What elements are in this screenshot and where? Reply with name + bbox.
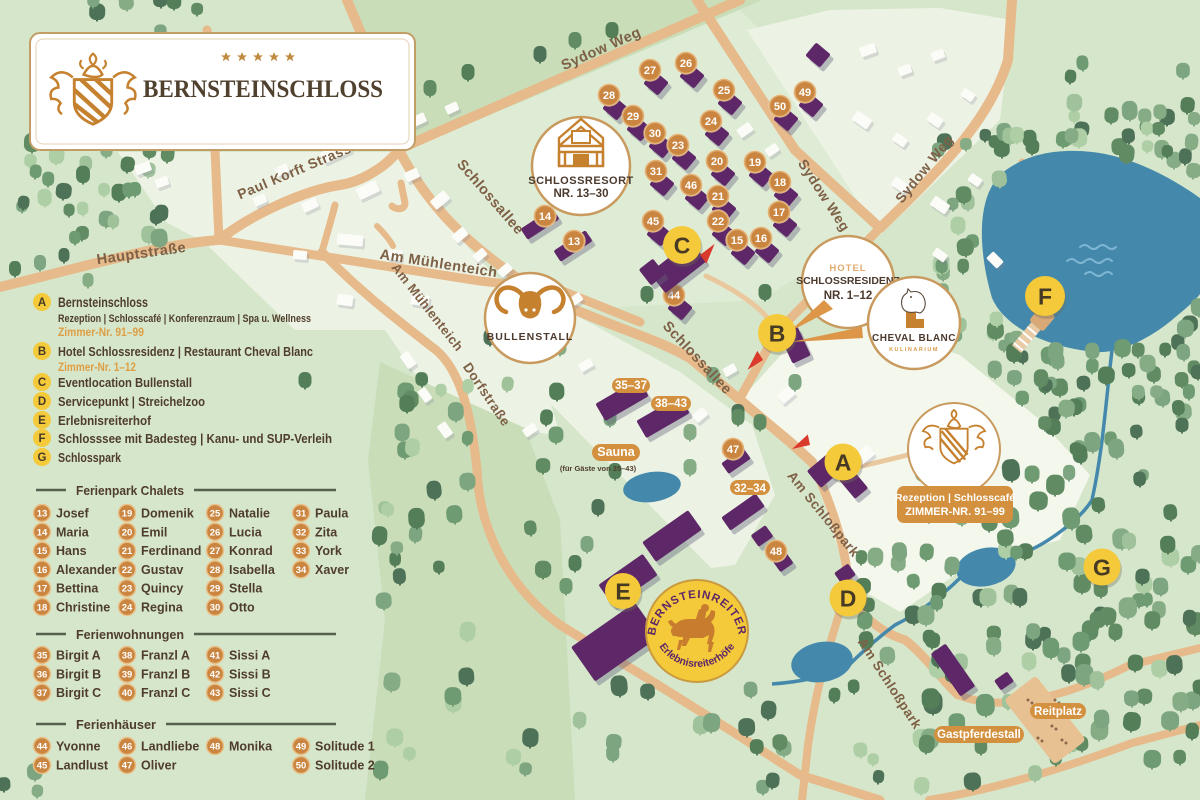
svg-text:York: York <box>315 544 342 558</box>
svg-text:Hans: Hans <box>56 544 87 558</box>
svg-text:Sauna: Sauna <box>597 445 636 459</box>
svg-text:Lucia: Lucia <box>229 525 263 539</box>
svg-text:18: 18 <box>774 177 786 189</box>
svg-text:SCHLOSSRESIDENZ: SCHLOSSRESIDENZ <box>796 275 900 287</box>
svg-text:Sissi A: Sissi A <box>229 649 270 663</box>
svg-text:C: C <box>674 232 691 258</box>
svg-text:Isabella: Isabella <box>229 563 276 577</box>
svg-text:E: E <box>615 578 630 604</box>
svg-text:Xaver: Xaver <box>315 563 349 577</box>
svg-text:24: 24 <box>122 603 133 614</box>
svg-text:CHEVAL BLANC: CHEVAL BLANC <box>872 333 956 344</box>
svg-text:Franzl A: Franzl A <box>141 649 190 663</box>
svg-text:Ferienpark Chalets: Ferienpark Chalets <box>76 483 184 498</box>
svg-text:38–43: 38–43 <box>655 398 687 410</box>
svg-text:15: 15 <box>731 235 743 247</box>
svg-text:13: 13 <box>37 509 48 520</box>
svg-text:50: 50 <box>774 101 786 113</box>
svg-text:Emil: Emil <box>141 525 167 539</box>
svg-text:D: D <box>38 396 46 408</box>
svg-text:Bernsteinschloss: Bernsteinschloss <box>58 295 148 310</box>
svg-text:Zimmer-Nr. 1–12: Zimmer-Nr. 1–12 <box>58 360 136 374</box>
svg-text:45: 45 <box>647 216 659 228</box>
svg-text:Quincy: Quincy <box>141 582 183 596</box>
svg-text:14: 14 <box>37 527 48 538</box>
svg-text:41: 41 <box>210 651 221 662</box>
svg-text:40: 40 <box>122 688 133 699</box>
svg-text:BULLENSTALL: BULLENSTALL <box>487 331 574 343</box>
svg-text:47: 47 <box>727 444 739 456</box>
svg-text:24: 24 <box>705 116 718 128</box>
svg-text:Konrad: Konrad <box>229 544 273 558</box>
svg-text:(für Gäste von 35–43): (für Gäste von 35–43) <box>560 464 637 473</box>
svg-text:Maria: Maria <box>56 525 90 539</box>
svg-text:38: 38 <box>122 651 133 662</box>
svg-text:Erlebnisreiterhof: Erlebnisreiterhof <box>58 413 152 428</box>
svg-text:Birgit C: Birgit C <box>56 686 101 700</box>
svg-text:Gustav: Gustav <box>141 563 183 577</box>
svg-text:16: 16 <box>755 233 767 245</box>
svg-text:21: 21 <box>122 546 133 557</box>
svg-text:27: 27 <box>210 546 221 557</box>
svg-text:25: 25 <box>718 85 730 97</box>
svg-text:G: G <box>1093 554 1111 580</box>
svg-text:Birgit B: Birgit B <box>56 667 101 681</box>
svg-text:F: F <box>38 433 45 445</box>
svg-text:19: 19 <box>122 509 133 520</box>
svg-text:Bettina: Bettina <box>56 582 99 596</box>
svg-text:Yvonne: Yvonne <box>56 740 101 754</box>
svg-text:29: 29 <box>210 584 221 595</box>
svg-text:Paula: Paula <box>315 507 349 521</box>
svg-text:Schlosspark: Schlosspark <box>58 450 122 465</box>
svg-text:Zita: Zita <box>315 525 338 539</box>
svg-text:46: 46 <box>685 180 697 192</box>
svg-text:Solitude 2: Solitude 2 <box>315 759 375 773</box>
svg-text:43: 43 <box>210 688 221 699</box>
svg-text:49: 49 <box>296 742 307 753</box>
svg-text:30: 30 <box>649 128 661 140</box>
svg-text:Solitude 1: Solitude 1 <box>315 740 375 754</box>
svg-text:Ferdinand: Ferdinand <box>141 544 201 558</box>
svg-text:20: 20 <box>122 527 133 538</box>
svg-text:26: 26 <box>210 527 221 538</box>
svg-text:Stella: Stella <box>229 582 263 596</box>
svg-text:44: 44 <box>37 742 48 753</box>
svg-text:33: 33 <box>296 546 307 557</box>
svg-text:35: 35 <box>37 651 48 662</box>
svg-text:19: 19 <box>749 157 761 169</box>
svg-text:27: 27 <box>644 65 656 77</box>
svg-text:Monika: Monika <box>229 740 273 754</box>
svg-text:17: 17 <box>37 584 48 595</box>
svg-text:Sissi B: Sissi B <box>229 667 271 681</box>
svg-text:45: 45 <box>37 761 48 772</box>
svg-text:Christine: Christine <box>56 601 110 615</box>
svg-text:39: 39 <box>122 669 133 680</box>
svg-text:23: 23 <box>672 140 684 152</box>
svg-text:48: 48 <box>210 742 221 753</box>
svg-text:Sissi C: Sissi C <box>229 686 271 700</box>
svg-text:18: 18 <box>37 603 48 614</box>
svg-text:17: 17 <box>773 207 785 219</box>
svg-text:48: 48 <box>770 546 782 558</box>
svg-text:22: 22 <box>122 565 133 576</box>
svg-text:Hotel Schlossresidenz | Restau: Hotel Schlossresidenz | Restaurant Cheva… <box>58 344 313 359</box>
svg-text:36: 36 <box>37 669 48 680</box>
svg-text:46: 46 <box>122 742 133 753</box>
svg-text:Rezeption | Schlosscafé | Konf: Rezeption | Schlosscafé | Konferenzraum … <box>58 313 311 325</box>
svg-text:Ferienhäuser: Ferienhäuser <box>76 717 156 732</box>
svg-text:42: 42 <box>210 669 221 680</box>
svg-text:Otto: Otto <box>229 601 255 615</box>
svg-text:Landlust: Landlust <box>56 759 109 773</box>
svg-text:B: B <box>38 346 46 358</box>
svg-text:E: E <box>38 415 46 427</box>
svg-text:32: 32 <box>296 527 307 538</box>
svg-text:KULINARIUM: KULINARIUM <box>889 347 939 353</box>
svg-text:22: 22 <box>712 216 724 228</box>
svg-text:Gastpferdestall: Gastpferdestall <box>937 729 1021 741</box>
svg-text:29: 29 <box>627 111 639 123</box>
svg-text:D: D <box>840 585 857 611</box>
svg-text:32–34: 32–34 <box>734 483 767 495</box>
svg-text:ZIMMER-NR. 91–99: ZIMMER-NR. 91–99 <box>905 506 1005 518</box>
svg-text:Franzl B: Franzl B <box>141 667 190 681</box>
svg-text:49: 49 <box>799 87 811 99</box>
svg-text:Schlosssee mit Badesteg | Kanu: Schlosssee mit Badesteg | Kanu- und SUP-… <box>58 431 332 446</box>
svg-text:15: 15 <box>37 546 48 557</box>
svg-text:26: 26 <box>680 58 692 70</box>
svg-text:Reitplatz: Reitplatz <box>1034 706 1082 718</box>
svg-text:13: 13 <box>568 236 580 248</box>
svg-text:50: 50 <box>296 761 307 772</box>
svg-text:G: G <box>38 452 47 464</box>
svg-text:34: 34 <box>296 565 307 576</box>
svg-text:SCHLOSSRESORT: SCHLOSSRESORT <box>528 175 634 187</box>
svg-text:NR. 13–30: NR. 13–30 <box>554 188 609 200</box>
svg-text:A: A <box>835 449 852 475</box>
svg-text:37: 37 <box>37 688 48 699</box>
svg-text:20: 20 <box>711 156 723 168</box>
svg-text:C: C <box>38 377 46 389</box>
svg-text:A: A <box>38 297 46 309</box>
svg-text:25: 25 <box>210 509 221 520</box>
svg-text:Landliebe: Landliebe <box>141 740 199 754</box>
svg-text:Natalie: Natalie <box>229 507 270 521</box>
svg-text:23: 23 <box>122 584 133 595</box>
svg-text:31: 31 <box>650 166 662 178</box>
svg-text:Eventlocation Bullenstall: Eventlocation Bullenstall <box>58 375 192 390</box>
svg-text:HOTEL: HOTEL <box>829 263 866 274</box>
svg-text:Birgit A: Birgit A <box>56 649 101 663</box>
svg-text:B: B <box>769 320 786 346</box>
svg-text:Domenik: Domenik <box>141 507 194 521</box>
svg-text:14: 14 <box>539 211 552 223</box>
svg-text:47: 47 <box>122 761 133 772</box>
svg-text:F: F <box>1038 283 1052 309</box>
svg-text:NR. 1–12: NR. 1–12 <box>824 290 873 302</box>
svg-text:Ferienwohnungen: Ferienwohnungen <box>76 627 184 642</box>
svg-text:16: 16 <box>37 565 48 576</box>
svg-text:Oliver: Oliver <box>141 759 177 773</box>
svg-text:Franzl C: Franzl C <box>141 686 190 700</box>
svg-text:Zimmer-Nr. 91–99: Zimmer-Nr. 91–99 <box>58 325 144 339</box>
svg-text:Rezeption | Schlosscafé: Rezeption | Schlosscafé <box>895 492 1015 504</box>
svg-text:Josef: Josef <box>56 507 89 521</box>
svg-text:21: 21 <box>712 191 724 203</box>
svg-text:30: 30 <box>210 603 221 614</box>
svg-text:28: 28 <box>210 565 221 576</box>
svg-text:28: 28 <box>603 90 615 102</box>
svg-text:31: 31 <box>296 509 307 520</box>
svg-text:Regina: Regina <box>141 601 184 615</box>
svg-text:Servicepunkt | Streichelzoo: Servicepunkt | Streichelzoo <box>58 394 205 409</box>
svg-text:35–37: 35–37 <box>615 380 647 392</box>
svg-text:BERNSTEINSCHLOSS: BERNSTEINSCHLOSS <box>143 76 383 103</box>
svg-text:Alexander: Alexander <box>56 563 117 577</box>
